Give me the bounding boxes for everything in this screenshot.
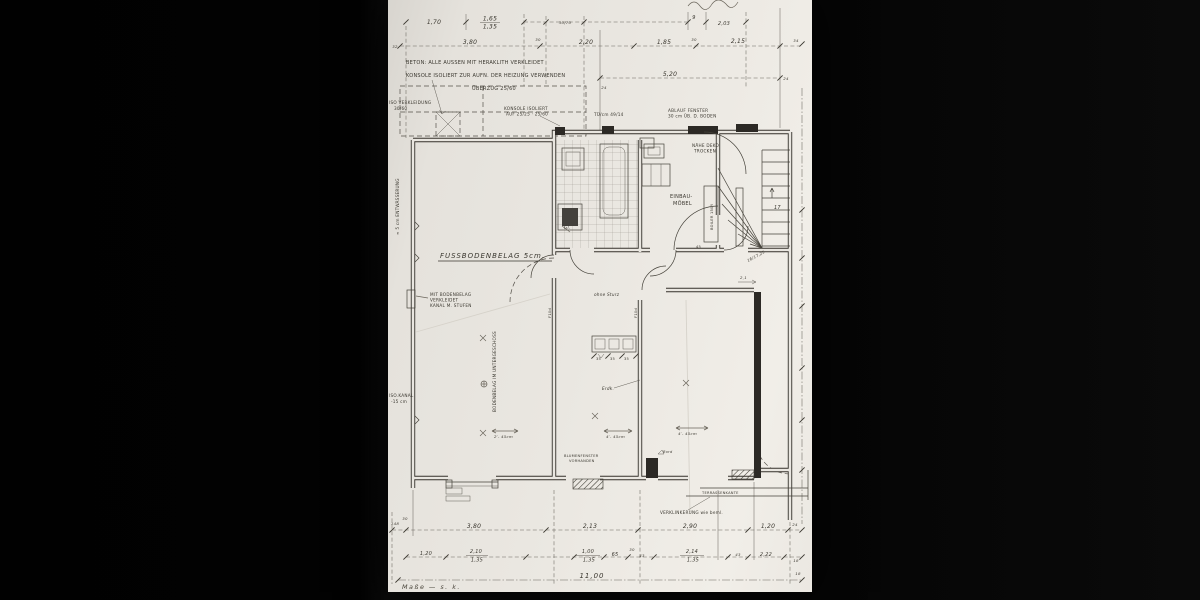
built-in-cabinets	[591, 336, 640, 388]
dim-bot2-i: 18	[793, 558, 799, 563]
label-ohne-sturz: ohne Sturz	[594, 292, 620, 297]
label-blumenfenster-2: VORHANDEN	[569, 459, 595, 463]
label-erdk: Erdk.	[602, 386, 614, 391]
cut-off-handwriting	[688, 0, 738, 10]
cabinet-dim-3: 35	[624, 357, 629, 361]
cabinet-dim-2: 35	[610, 357, 615, 361]
floor-plan-drawing: BETON: ALLE AUSSEN MIT HERAKLITH VERKLEI…	[388, 0, 812, 592]
note-tuer: TÜ/cm 49/14	[593, 112, 624, 117]
bathroom-tile-floor	[556, 140, 640, 248]
dim-bot2-c: 1,00	[582, 549, 594, 555]
dim-top2-d: 1,85	[657, 39, 671, 46]
label-bord: Bord	[663, 450, 673, 454]
note-ablauf-2: 30 cm ÜB. D. BODEN	[668, 114, 716, 119]
dim-bot2-h: 2,22	[760, 552, 772, 558]
dim-total-right: 18	[795, 571, 801, 576]
kitchen-table	[642, 164, 670, 186]
label-einbau-2: MÖBEL	[673, 200, 692, 207]
solid-wall-fill	[754, 292, 761, 478]
dim-top1-b: 1,65	[483, 16, 497, 23]
staircase	[718, 150, 790, 284]
dim-top2-c: 2,20	[579, 39, 593, 46]
dim-top2-e: 2,15	[731, 38, 745, 45]
photo-background: BETON: ALLE AUSSEN MIT HERAKLITH VERKLEI…	[0, 0, 1200, 600]
note-ablauf-1: ABLAUF FENSTER	[668, 108, 708, 113]
label-fussbodenbelag: FUSSBODENBELAG 5cm.	[440, 252, 545, 260]
dim-top3-b: 24	[783, 76, 789, 81]
dim-top3-c: 24	[601, 85, 607, 90]
note-iso-1: ISO VERKLEIDUNG	[389, 100, 431, 105]
dim-top1-a: 1,70	[427, 19, 441, 26]
dim-bot2-f: 2,14	[686, 549, 698, 555]
note-mit-boden-2: VERKLEIDET	[430, 298, 459, 303]
dim-bot2-a: 1,20	[420, 551, 432, 557]
dim-top1-d: 30/70	[559, 20, 572, 25]
label-blumenfenster-1: BLUMENFENSTER	[564, 454, 599, 458]
door-width-a: 2′- 45cm	[494, 434, 513, 439]
dim-bot1-s: 30	[402, 516, 408, 521]
stair-step-count: 17	[774, 205, 781, 211]
dim-bot2-d: 65	[612, 552, 619, 558]
dim-top3-a: 5,20	[663, 71, 677, 78]
door-threshold	[646, 458, 658, 478]
label-boiler: BOILER 150/l	[710, 204, 714, 230]
note-mit-boden-1: MIT BODENBELAG	[430, 292, 471, 297]
dim-bot1-f: 24	[792, 522, 798, 527]
cabinet-dim-1: 35	[596, 357, 601, 361]
dim-bot1-d: 2,90	[683, 523, 697, 530]
note-iso-kanal-1: ISO.KANAL	[389, 393, 414, 398]
dim-bot2-b: 2,10	[470, 549, 482, 555]
dim-top2-a: 32	[392, 44, 398, 49]
label-verklinkerung: VERKLINKERUNG wie beml.	[660, 510, 723, 515]
dim-bot2-b2: 1,35	[471, 558, 483, 564]
dim-bot2-f2: 1,35	[687, 558, 699, 564]
label-bodenbelag-vertical: BODENBELAG IM UNTERGESCHOSS	[492, 331, 497, 412]
dim-top1-f: 2,03	[718, 21, 730, 27]
note-iso-2: 30/60	[394, 106, 407, 111]
dim-top2-s2: 30	[691, 37, 697, 42]
label-einbau-1: EINBAU-	[670, 194, 692, 200]
dim-top1-e: 9	[692, 15, 695, 21]
door-width-c: 4′- 45cm	[678, 431, 697, 436]
dim-top2-s1: 30	[535, 37, 541, 42]
label-gl: Gl.	[564, 225, 571, 230]
note-iso-kanal-2: -15 cm	[391, 399, 407, 404]
boiler-dim: 45	[696, 245, 701, 249]
dim-top2-b: 3,80	[463, 39, 477, 46]
dim-bot1-c: 2,13	[583, 523, 597, 530]
stair-arrow-dim: 2,1	[740, 275, 747, 280]
note-naehe-1: NÄHE DEKO	[692, 143, 720, 148]
dim-top2-f: 34	[793, 38, 799, 43]
dim-bot2-g: 43	[735, 552, 741, 557]
dim-bot2-s: 30	[629, 547, 635, 552]
door-tag-2: F10d	[634, 308, 638, 318]
note-mit-boden-3: KANAL M. STUFEN	[430, 303, 472, 308]
note-naehe-2: TROCKEN	[693, 149, 716, 154]
note-entwaesserung: ≈ 5 cm ENTWÄSSERUNG	[395, 178, 400, 235]
handwritten-note: Maße — s. k.	[402, 583, 461, 591]
dim-top1-c: 1,35	[483, 24, 497, 31]
door-tag-1: F10d	[548, 308, 552, 318]
note-konsole-box-2: AUF 25/25 · 25/60	[506, 112, 548, 117]
dim-bot1-e: 1,20	[761, 523, 775, 530]
window-sill-hatched	[573, 479, 603, 489]
door-width-b: 4′- 45cm	[606, 434, 625, 439]
dim-bot2-e: 43	[639, 553, 645, 558]
dim-bot1-a: 148	[391, 521, 399, 526]
note-konsole-box-1: KONSOLE ISOLIERT	[504, 106, 548, 111]
blueprint-paper: BETON: ALLE AUSSEN MIT HERAKLITH VERKLEI…	[388, 0, 812, 592]
dim-bot1-b: 3,80	[467, 523, 481, 530]
note-beton: BETON: ALLE AUSSEN MIT HERAKLITH VERKLEI…	[406, 60, 544, 66]
note-ueberzug: ÜBERZUG 25/60	[472, 85, 516, 92]
note-konsole: KONSOLE ISOLIERT ZUR AUFN. DER HEIZUNG V…	[406, 73, 565, 79]
dim-bot2-c2: 1,35	[583, 558, 595, 564]
dim-total: 11,00	[579, 572, 604, 580]
window-sill-hatched-right	[732, 470, 754, 479]
label-terrassenkante: TERRASSENKANTE	[701, 491, 739, 495]
